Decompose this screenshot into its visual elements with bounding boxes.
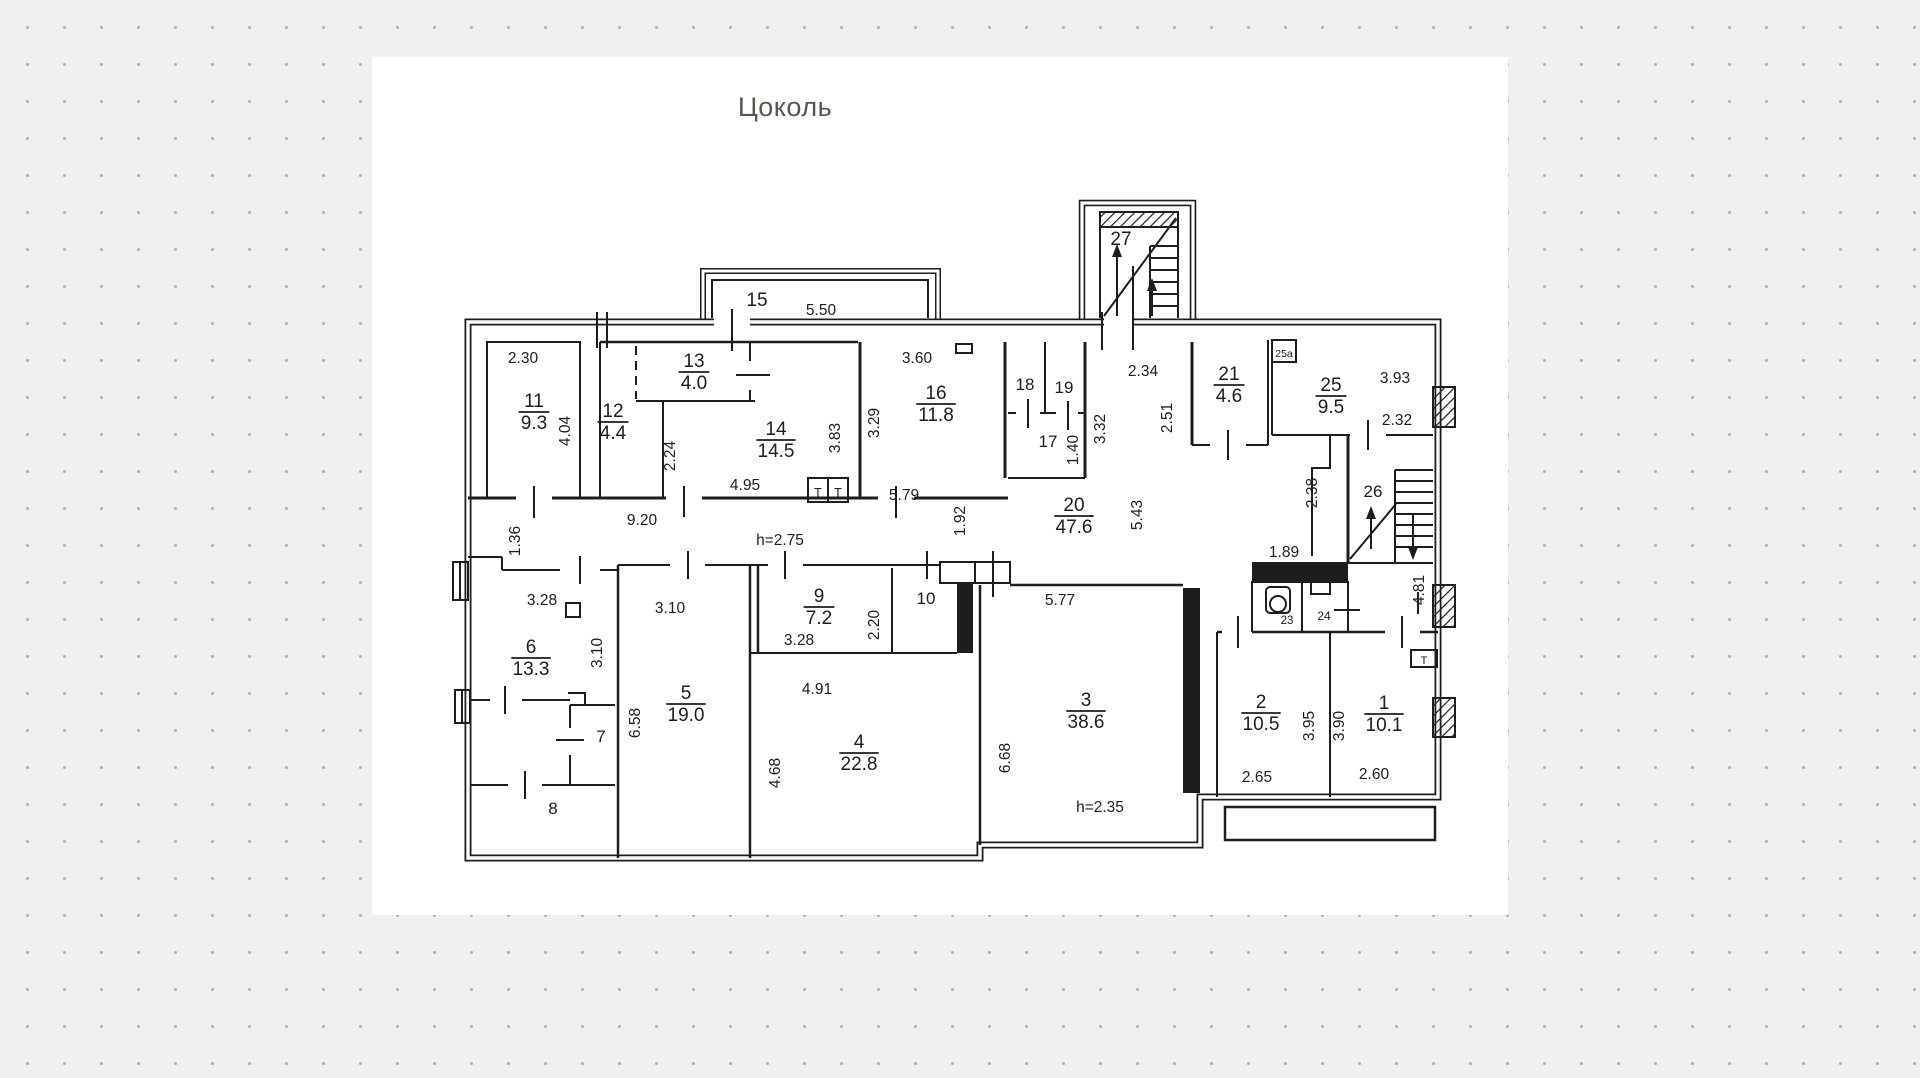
door-leaf xyxy=(940,562,975,583)
stair-treads-27 xyxy=(1150,246,1178,318)
room-area-1: 10.1 xyxy=(1366,715,1403,736)
room-area-12: 4.4 xyxy=(600,423,627,444)
room-area-9: 7.2 xyxy=(806,608,832,629)
plan-label: 25а xyxy=(1275,348,1293,360)
dim-label: 5.77 xyxy=(1045,592,1075,609)
room-number-13: 13 xyxy=(683,351,704,372)
down-arrow-icon xyxy=(1408,547,1418,560)
plan-label: Т xyxy=(834,486,842,500)
dim-label: 2.20 xyxy=(866,610,883,641)
shaft-box xyxy=(566,603,580,617)
dim-label: 5.79 xyxy=(889,487,919,504)
room-area-4: 22.8 xyxy=(841,754,878,775)
room-number-9: 9 xyxy=(814,586,825,607)
room-number-21: 21 xyxy=(1218,364,1239,385)
room-number-1: 1 xyxy=(1379,693,1390,714)
up-arrow-icon xyxy=(1366,506,1376,519)
stair-tower-27 xyxy=(1082,203,1193,322)
room-number-4: 4 xyxy=(854,732,865,753)
room-area-20: 47.6 xyxy=(1056,517,1093,538)
room-area-13: 4.0 xyxy=(681,373,707,394)
room-number-5: 5 xyxy=(681,683,692,704)
dim-label: 5.50 xyxy=(806,302,837,319)
dim-label: 2.60 xyxy=(1359,766,1390,783)
room-area-3: 38.6 xyxy=(1068,712,1105,733)
dim-label: 4.81 xyxy=(1411,575,1428,605)
room-area-25: 9.5 xyxy=(1318,397,1344,418)
floor-plan-svg: 119.3124.4134.01414.51611.82047.6214.625… xyxy=(0,0,1920,1078)
plan-labels: 119.3124.4134.01414.51611.82047.6214.625… xyxy=(507,229,1428,818)
room-area-21: 4.6 xyxy=(1216,386,1242,407)
dim-label: 4.91 xyxy=(802,681,832,698)
dim-label: 3.90 xyxy=(1331,711,1348,742)
room-area-16: 11.8 xyxy=(918,405,954,426)
dim-label: 1.92 xyxy=(952,506,969,536)
bottom-terrace xyxy=(1225,807,1435,840)
dim-label: 3.10 xyxy=(655,600,686,617)
dim-label: 2.30 xyxy=(508,350,539,367)
dim-label: 1.36 xyxy=(507,526,524,556)
dim-label: 2.65 xyxy=(1242,769,1272,786)
room-area-11: 9.3 xyxy=(521,413,547,434)
plan-label: 10 xyxy=(917,589,936,608)
dim-label: 2.51 xyxy=(1159,403,1176,433)
dim-label: 4.95 xyxy=(730,477,760,494)
room-number-14: 14 xyxy=(765,419,787,440)
room-number-2: 2 xyxy=(1256,692,1267,713)
room-number-20: 20 xyxy=(1063,495,1084,516)
dim-label: 3.28 xyxy=(527,592,557,609)
dim-label: 3.93 xyxy=(1380,370,1410,387)
dim-label: 6.58 xyxy=(627,708,644,738)
plan-label: Т xyxy=(1421,655,1428,667)
dim-label: 3.32 xyxy=(1092,414,1109,444)
sink-icon xyxy=(1311,582,1330,594)
dim-label: 4.68 xyxy=(767,758,784,788)
plan-label: Т xyxy=(814,486,822,500)
room-area-14: 14.5 xyxy=(758,441,795,462)
dim-label: 2.24 xyxy=(662,441,679,472)
dim-label: 3.28 xyxy=(784,632,814,649)
plan-label: 24 xyxy=(1317,609,1331,623)
dim-label: h=2.35 xyxy=(1076,799,1124,816)
plan-label: 23 xyxy=(1281,615,1294,627)
room-number-25: 25 xyxy=(1320,375,1341,396)
plan-label: 27 xyxy=(1110,229,1131,250)
plan-label: 17 xyxy=(1039,432,1058,451)
dim-label: 3.29 xyxy=(866,408,883,438)
dim-label: 4.04 xyxy=(557,416,574,447)
dim-label: 2.34 xyxy=(1128,363,1159,380)
plan-label: 18 xyxy=(1016,375,1035,394)
room-number-16: 16 xyxy=(925,383,946,404)
dim-label: 9.20 xyxy=(627,512,658,529)
dim-label: h=2.75 xyxy=(756,532,804,549)
dim-label: 3.83 xyxy=(827,423,844,453)
toilet-icon xyxy=(1266,587,1290,613)
room-number-12: 12 xyxy=(602,401,623,422)
stairs-26 xyxy=(1350,470,1433,563)
dim-label: 5.43 xyxy=(1129,500,1146,530)
room-number-3: 3 xyxy=(1081,690,1092,711)
plan-label: 19 xyxy=(1055,378,1074,397)
room-area-6: 13.3 xyxy=(513,659,550,680)
dim-label: 3.60 xyxy=(902,350,933,367)
plan-label: 15 xyxy=(746,290,767,311)
room-area-2: 10.5 xyxy=(1243,714,1280,735)
dim-label: 1.89 xyxy=(1269,544,1299,561)
dim-label: 1.40 xyxy=(1065,435,1082,466)
dim-label: 6.68 xyxy=(997,743,1014,773)
dim-label: 2.38 xyxy=(1304,478,1321,508)
plan-label: 8 xyxy=(548,799,557,818)
plan-label: 26 xyxy=(1364,482,1383,501)
dim-label: 2.32 xyxy=(1382,412,1412,429)
dim-label: 3.10 xyxy=(589,638,606,669)
room-area-5: 19.0 xyxy=(668,705,705,726)
room-number-11: 11 xyxy=(524,391,544,412)
dim-label: 3.95 xyxy=(1301,711,1318,741)
stair-hatch-landing xyxy=(1100,212,1178,227)
room-number-6: 6 xyxy=(526,637,537,658)
plan-label: 7 xyxy=(596,727,605,746)
